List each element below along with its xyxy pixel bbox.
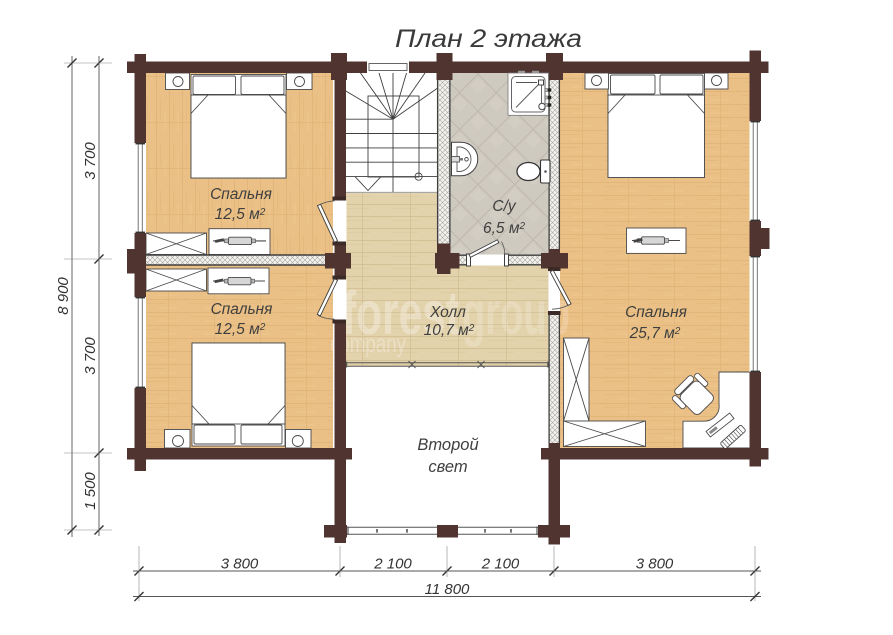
svg-text:12,5 м2: 12,5 м2: [215, 321, 266, 338]
svg-text:С/у: С/у: [492, 198, 517, 215]
svg-text:План 2 этажа: План 2 этажа: [395, 25, 582, 53]
svg-text:1 500: 1 500: [82, 472, 99, 510]
svg-text:3 700: 3 700: [82, 337, 99, 375]
svg-text:2 100: 2 100: [481, 556, 520, 573]
svg-text:6,5 м2: 6,5 м2: [483, 220, 525, 237]
svg-text:3 800: 3 800: [636, 556, 674, 573]
svg-text:3 800: 3 800: [221, 556, 259, 573]
svg-text:Второй: Второй: [417, 436, 478, 454]
svg-text:25,7 м2: 25,7 м2: [629, 325, 681, 342]
svg-text:Спальня: Спальня: [211, 301, 273, 318]
svg-text:11 800: 11 800: [425, 581, 470, 598]
svg-text:10,7 м2: 10,7 м2: [424, 322, 475, 339]
svg-text:3 700: 3 700: [82, 142, 99, 180]
svg-text:Холл: Холл: [429, 304, 466, 321]
svg-text:Спальня: Спальня: [625, 304, 687, 321]
svg-text:Спальня: Спальня: [210, 186, 272, 203]
svg-text:8 900: 8 900: [55, 277, 72, 315]
svg-text:свет: свет: [428, 458, 467, 476]
svg-text:2 100: 2 100: [373, 556, 412, 573]
svg-text:12,5 м2: 12,5 м2: [215, 206, 266, 223]
